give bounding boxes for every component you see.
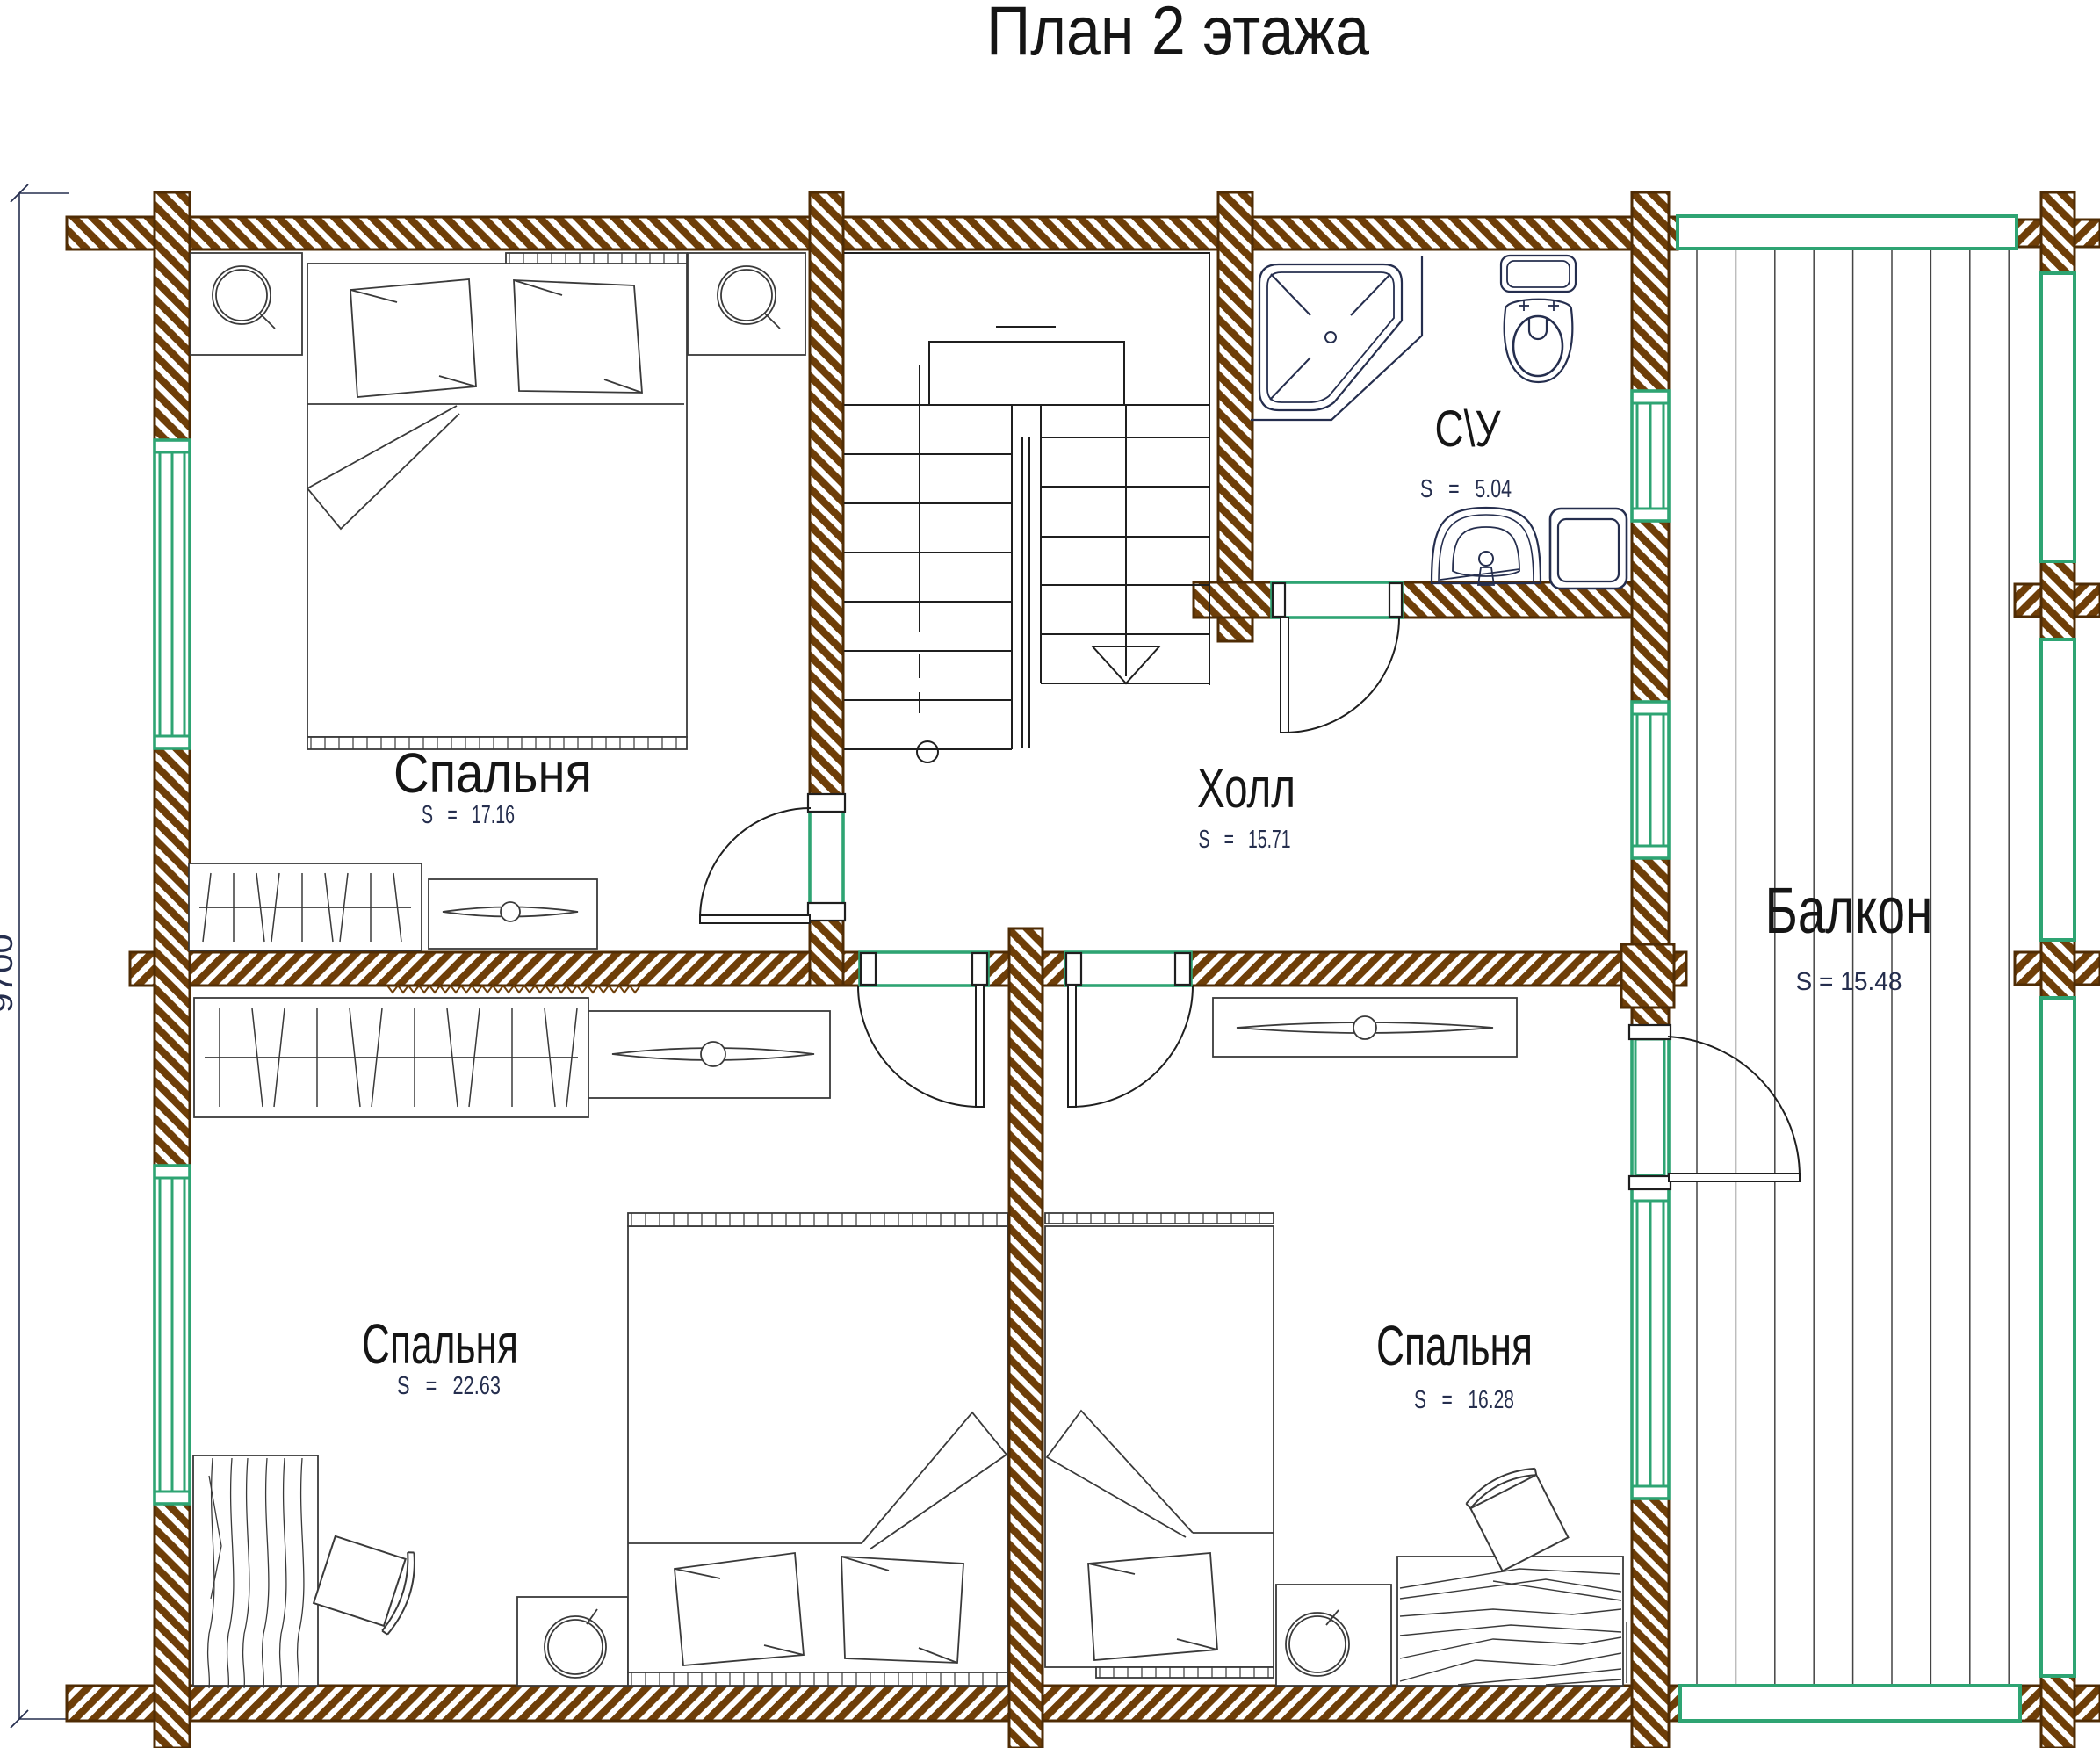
svg-text:Спальня: Спальня bbox=[393, 741, 592, 805]
svg-text:Спальня: Спальня bbox=[1376, 1314, 1533, 1377]
svg-text:План 2 этажа: План 2 этажа bbox=[986, 0, 1369, 69]
svg-text:S = 16.28: S = 16.28 bbox=[1414, 1386, 1514, 1414]
svg-text:S = 17.16: S = 17.16 bbox=[422, 801, 515, 829]
svg-text:S = 5.04: S = 5.04 bbox=[1420, 475, 1512, 503]
svg-text:Спальня: Спальня bbox=[362, 1312, 518, 1376]
svg-text:Холл: Холл bbox=[1197, 756, 1295, 820]
svg-text:Балкон: Балкон bbox=[1765, 874, 1933, 947]
svg-text:S = 22.63: S = 22.63 bbox=[397, 1372, 501, 1400]
svg-text:S = 15.71: S = 15.71 bbox=[1199, 826, 1291, 854]
svg-text:9700: 9700 bbox=[0, 934, 19, 1013]
svg-text:S = 15.48: S = 15.48 bbox=[1796, 968, 1902, 996]
svg-text:С\У: С\У bbox=[1435, 401, 1502, 458]
